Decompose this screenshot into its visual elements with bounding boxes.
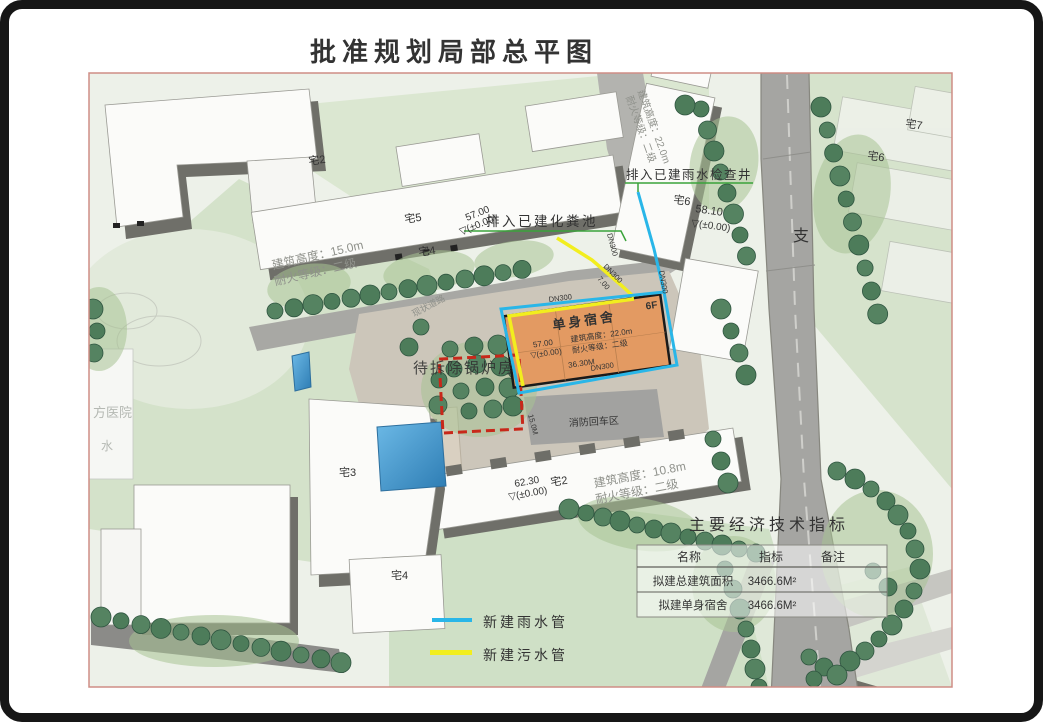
row2-value: 3466.6M² <box>748 600 797 612</box>
tree-icon <box>271 641 291 661</box>
tree-icon <box>736 365 756 385</box>
tree-icon <box>312 650 330 668</box>
tree-icon <box>629 517 645 533</box>
tree-icon <box>712 452 730 470</box>
legend-sewage-label: 新建污水管 <box>483 647 568 663</box>
legend-rain-label: 新建雨水管 <box>483 614 568 630</box>
row1-value: 3466.6M² <box>748 576 797 588</box>
tree-icon <box>871 631 887 647</box>
tree-icon <box>252 638 270 656</box>
house-z4b: 宅4 <box>391 568 408 582</box>
tree-icon <box>89 323 105 339</box>
tree-icon <box>453 383 469 399</box>
tree-icon <box>738 247 756 265</box>
tree-icon <box>417 275 437 295</box>
tree-icon <box>233 636 249 652</box>
tree-icon <box>806 671 822 687</box>
tree-icon <box>863 481 879 497</box>
tree-icon <box>699 121 717 139</box>
tree-icon <box>910 559 930 579</box>
tree-icon <box>745 659 765 679</box>
site-plan-canvas: 批准规划局部总平图 <box>9 9 1043 722</box>
tree-icon <box>730 344 748 362</box>
tree-icon <box>476 378 494 396</box>
tree-icon <box>267 303 283 319</box>
tree-icon <box>705 431 721 447</box>
table-header-note: 备注 <box>821 549 845 564</box>
house-z3: 宅3 <box>339 465 356 479</box>
tree-icon <box>91 607 111 627</box>
tree-icon <box>828 462 846 480</box>
tree-icon <box>845 469 865 489</box>
tree-icon <box>857 260 873 276</box>
tree-icon <box>331 653 351 673</box>
tree-icon <box>503 396 523 416</box>
tree-icon <box>173 624 189 640</box>
tree-icon <box>461 403 477 419</box>
tree-icon <box>882 615 902 635</box>
tree-icon <box>192 627 210 645</box>
tree-icon <box>906 583 922 599</box>
tree-icon <box>495 265 511 281</box>
tree-icon <box>895 600 913 618</box>
row2-name: 拟建单身宿舍 <box>659 598 728 612</box>
tree-icon <box>285 299 303 317</box>
dorm-floors-label: 6F <box>645 300 658 313</box>
tree-icon <box>559 499 579 519</box>
page-title: 批准规划局部总平图 <box>310 38 598 67</box>
tree-icon <box>900 523 916 539</box>
tree-icon <box>324 293 340 309</box>
tree-icon <box>888 505 908 525</box>
tree-icon <box>400 338 418 356</box>
tree-icon <box>85 344 103 362</box>
table-header-name: 名称 <box>677 549 701 564</box>
map-area: 单身宿舍 6F 57.00 ▽(±0.00) 建筑高度：22.0m 耐火等级：二… <box>69 33 981 699</box>
tree-icon <box>132 616 150 634</box>
tree-icon <box>830 166 850 186</box>
tree-icon <box>488 335 508 355</box>
tree-icon <box>360 285 380 305</box>
tree-icon <box>645 520 663 538</box>
tree-icon <box>399 280 417 298</box>
tree-icon <box>862 282 880 300</box>
tree-icon <box>693 101 709 117</box>
boiler-label: 待拆除锅炉房 <box>413 360 515 377</box>
septic-label: 排入已建化粪池 <box>486 214 598 229</box>
table-title: 主要经济技术指标 <box>689 516 849 534</box>
tree-icon <box>474 266 494 286</box>
tree-icon <box>594 508 612 526</box>
rain-pipe-swatch <box>432 618 472 622</box>
sewage-pipe-swatch <box>430 650 472 655</box>
tree-icon <box>438 274 454 290</box>
tree-icon <box>151 618 171 638</box>
tree-icon <box>732 227 748 243</box>
tree-icon <box>801 649 817 665</box>
table-row: 拟建总建筑面积 3466.6M² <box>653 574 797 588</box>
rain-well-label: 排入已建雨水检查井 <box>626 167 752 182</box>
tree-icon <box>723 323 739 339</box>
tree-icon <box>578 505 594 521</box>
tree-icon <box>303 295 323 315</box>
table-row: 拟建单身宿舍 3466.6M² <box>659 598 797 612</box>
tree-icon <box>849 235 869 255</box>
tree-icon <box>429 396 447 414</box>
tree-icon <box>442 341 458 357</box>
tree-icon <box>83 299 103 319</box>
tree-icon <box>738 621 754 637</box>
tree-icon <box>456 270 474 288</box>
branch-road-label: 支 <box>793 227 809 245</box>
tree-icon <box>113 613 129 629</box>
tree-icon <box>711 299 731 319</box>
tree-icon <box>825 144 843 162</box>
tree-icon <box>704 141 724 161</box>
tree-icon <box>342 289 360 307</box>
tree-icon <box>610 511 630 531</box>
tree-icon <box>484 400 502 418</box>
tree-icon <box>718 184 736 202</box>
tree-icon <box>819 122 835 138</box>
tree-icon <box>513 260 531 278</box>
tree-icon <box>827 665 847 685</box>
row1-name: 拟建总建筑面积 <box>653 574 734 588</box>
tree-icon <box>465 337 483 355</box>
tree-icon <box>675 95 695 115</box>
tree-icon <box>742 640 760 658</box>
tree-icon <box>293 647 309 663</box>
water-label: 水 <box>101 439 113 453</box>
tree-icon <box>661 523 681 543</box>
tree-icon <box>413 319 429 335</box>
drawing-page: 批准规划局部总平图 <box>0 0 1043 722</box>
tree-icon <box>811 97 831 117</box>
tree-icon <box>838 191 854 207</box>
tree-icon <box>724 204 744 224</box>
table-header-value: 指标 <box>759 549 783 564</box>
tree-icon <box>381 284 397 300</box>
tree-icon <box>211 630 231 650</box>
tree-icon <box>844 213 862 231</box>
hospital-label: 方医院 <box>93 405 132 420</box>
tree-icon <box>906 540 924 558</box>
tree-icon <box>868 304 888 324</box>
tree-icon <box>718 473 738 493</box>
